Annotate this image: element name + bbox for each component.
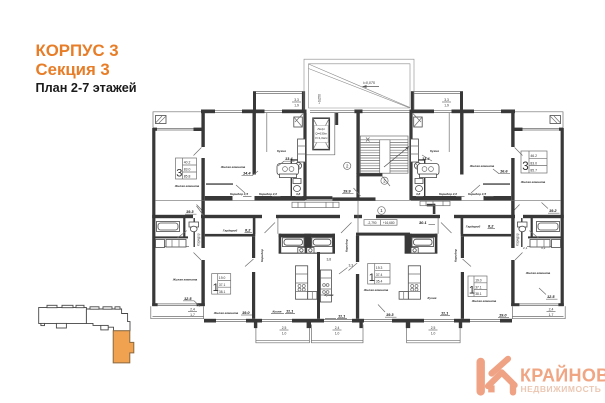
svg-text:1,7: 1,7 bbox=[549, 313, 554, 317]
svg-text:Q=630кг: Q=630кг bbox=[315, 132, 328, 136]
svg-text:Коридор: Коридор bbox=[260, 249, 264, 262]
svg-text:16.6: 16.6 bbox=[500, 169, 508, 174]
svg-text:13.4: 13.4 bbox=[422, 156, 430, 161]
svg-text:19.9: 19.9 bbox=[343, 189, 351, 194]
svg-text:11,1: 11,1 bbox=[441, 311, 448, 316]
svg-text:Гардероб: Гардероб bbox=[466, 225, 481, 229]
svg-text:19.0: 19.0 bbox=[242, 310, 250, 315]
svg-text:19.2: 19.2 bbox=[549, 208, 557, 213]
svg-text:V=1,0м/с: V=1,0м/с bbox=[315, 136, 328, 140]
svg-text:НЕДВИЖИМОСТЬ: НЕДВИЖИМОСТЬ bbox=[521, 384, 602, 394]
svg-text:11,1: 11,1 bbox=[338, 314, 345, 319]
svg-text:11,1: 11,1 bbox=[286, 309, 293, 314]
svg-text:1,0: 1,0 bbox=[431, 332, 436, 336]
svg-text:2,5: 2,5 bbox=[431, 326, 436, 330]
svg-text:Коридор: Коридор bbox=[345, 239, 349, 252]
svg-text:1,0: 1,0 bbox=[282, 332, 287, 336]
svg-text:1: 1 bbox=[369, 272, 375, 284]
svg-text:2,5: 2,5 bbox=[282, 326, 287, 330]
svg-text:-2,790: -2,790 bbox=[367, 221, 376, 225]
svg-text:14.4: 14.4 bbox=[243, 171, 251, 176]
svg-text:3,3: 3,3 bbox=[294, 98, 299, 102]
svg-text:3: 3 bbox=[522, 161, 528, 173]
svg-text:2,1: 2,1 bbox=[523, 246, 528, 250]
svg-text:3,8: 3,8 bbox=[296, 192, 301, 196]
svg-text:+0,050: +0,050 bbox=[318, 94, 322, 104]
svg-text:37.1: 37.1 bbox=[475, 285, 482, 289]
svg-text:12.5: 12.5 bbox=[547, 294, 555, 299]
svg-text:19.3: 19.3 bbox=[186, 209, 194, 214]
svg-text:3,3: 3,3 bbox=[349, 264, 354, 268]
svg-text:Кухня: Кухня bbox=[325, 293, 334, 297]
svg-text:37.1: 37.1 bbox=[219, 283, 226, 287]
svg-text:1,9: 1,9 bbox=[294, 104, 299, 108]
svg-text:Секция 3: Секция 3 bbox=[36, 60, 110, 79]
svg-text:Кухня: Кухня bbox=[430, 149, 439, 153]
svg-text:40.2: 40.2 bbox=[184, 161, 191, 165]
svg-text:+16,680: +16,680 bbox=[383, 221, 395, 225]
svg-text:2,4: 2,4 bbox=[190, 308, 195, 312]
svg-text:3,2: 3,2 bbox=[541, 246, 546, 250]
svg-text:Жилая комната: Жилая комната bbox=[471, 299, 497, 303]
svg-text:Кухня: Кухня bbox=[277, 149, 286, 153]
svg-text:Коридор 4,5: Коридор 4,5 bbox=[230, 192, 248, 196]
svg-text:38.1: 38.1 bbox=[219, 290, 226, 294]
svg-text:i=0,075: i=0,075 bbox=[363, 81, 375, 85]
svg-text:13.4: 13.4 bbox=[285, 156, 293, 161]
svg-text:Коридор: Коридор bbox=[197, 233, 201, 246]
svg-text:83.0: 83.0 bbox=[530, 161, 537, 165]
svg-text:Жилая комната: Жилая комната bbox=[213, 311, 239, 315]
svg-text:3,8: 3,8 bbox=[327, 258, 332, 262]
svg-text:Кухня: Кухня bbox=[273, 310, 282, 314]
svg-text:19.0: 19.0 bbox=[475, 279, 482, 283]
svg-text:Коридор 2,0: Коридор 2,0 bbox=[439, 192, 457, 196]
svg-text:1,0: 1,0 bbox=[335, 332, 340, 336]
svg-text:1: 1 bbox=[213, 282, 219, 294]
svg-text:19.0: 19.0 bbox=[499, 313, 507, 318]
svg-text:2: 2 bbox=[346, 163, 349, 168]
svg-text:12.5: 12.5 bbox=[184, 296, 192, 301]
svg-text:85.7: 85.7 bbox=[530, 169, 537, 173]
svg-text:Жилая комната: Жилая комната bbox=[469, 164, 495, 168]
svg-text:Коридор: Коридор bbox=[516, 233, 520, 246]
svg-text:85.8: 85.8 bbox=[184, 175, 191, 179]
svg-text:Жилая комната: Жилая комната bbox=[525, 271, 551, 275]
svg-text:Коридор: Коридор bbox=[454, 249, 458, 262]
svg-text:19.3: 19.3 bbox=[376, 266, 383, 270]
svg-text:План 2-7 этажей: План 2-7 этажей bbox=[36, 81, 137, 95]
svg-text:КОРПУС 3: КОРПУС 3 bbox=[36, 41, 119, 60]
svg-text:1,7: 1,7 bbox=[190, 313, 195, 317]
svg-text:35.4: 35.4 bbox=[376, 280, 383, 284]
svg-text:Жилая комната: Жилая комната bbox=[174, 184, 200, 188]
svg-text:Коридор 4,5: Коридор 4,5 bbox=[468, 192, 486, 196]
svg-text:2,4: 2,4 bbox=[549, 308, 554, 312]
svg-text:Гардероб: Гардероб bbox=[223, 228, 238, 232]
svg-text:Коридор 2,0: Коридор 2,0 bbox=[259, 192, 277, 196]
svg-text:3: 3 bbox=[176, 168, 182, 180]
svg-text:8,2: 8,2 bbox=[245, 227, 251, 232]
svg-text:Жилая комната: Жилая комната bbox=[172, 278, 198, 282]
svg-text:Жилая комната: Жилая комната bbox=[363, 288, 389, 292]
svg-text:КРАЙНОВ: КРАЙНОВ bbox=[520, 365, 605, 386]
svg-text:Кухня: Кухня bbox=[428, 296, 437, 300]
svg-text:3,3: 3,3 bbox=[444, 98, 449, 102]
svg-text:Жилая комната: Жилая комната bbox=[220, 165, 246, 169]
svg-text:3,8: 3,8 bbox=[416, 192, 421, 196]
svg-text:83.0: 83.0 bbox=[184, 168, 191, 172]
svg-text:19.0: 19.0 bbox=[219, 276, 226, 280]
svg-text:Лифт: Лифт bbox=[317, 127, 325, 131]
svg-text:8,2: 8,2 bbox=[488, 224, 494, 229]
svg-text:19.3: 19.3 bbox=[386, 312, 394, 317]
svg-text:2,4: 2,4 bbox=[335, 326, 340, 330]
svg-text:46.2: 46.2 bbox=[530, 154, 537, 158]
svg-text:1: 1 bbox=[469, 284, 475, 296]
svg-text:1: 1 bbox=[380, 208, 383, 213]
svg-text:Жилая комната: Жилая комната bbox=[520, 180, 546, 184]
svg-text:37.4: 37.4 bbox=[376, 273, 383, 277]
svg-text:38.1: 38.1 bbox=[475, 292, 482, 296]
svg-text:30.1: 30.1 bbox=[419, 220, 427, 225]
svg-text:1,9: 1,9 bbox=[444, 104, 449, 108]
